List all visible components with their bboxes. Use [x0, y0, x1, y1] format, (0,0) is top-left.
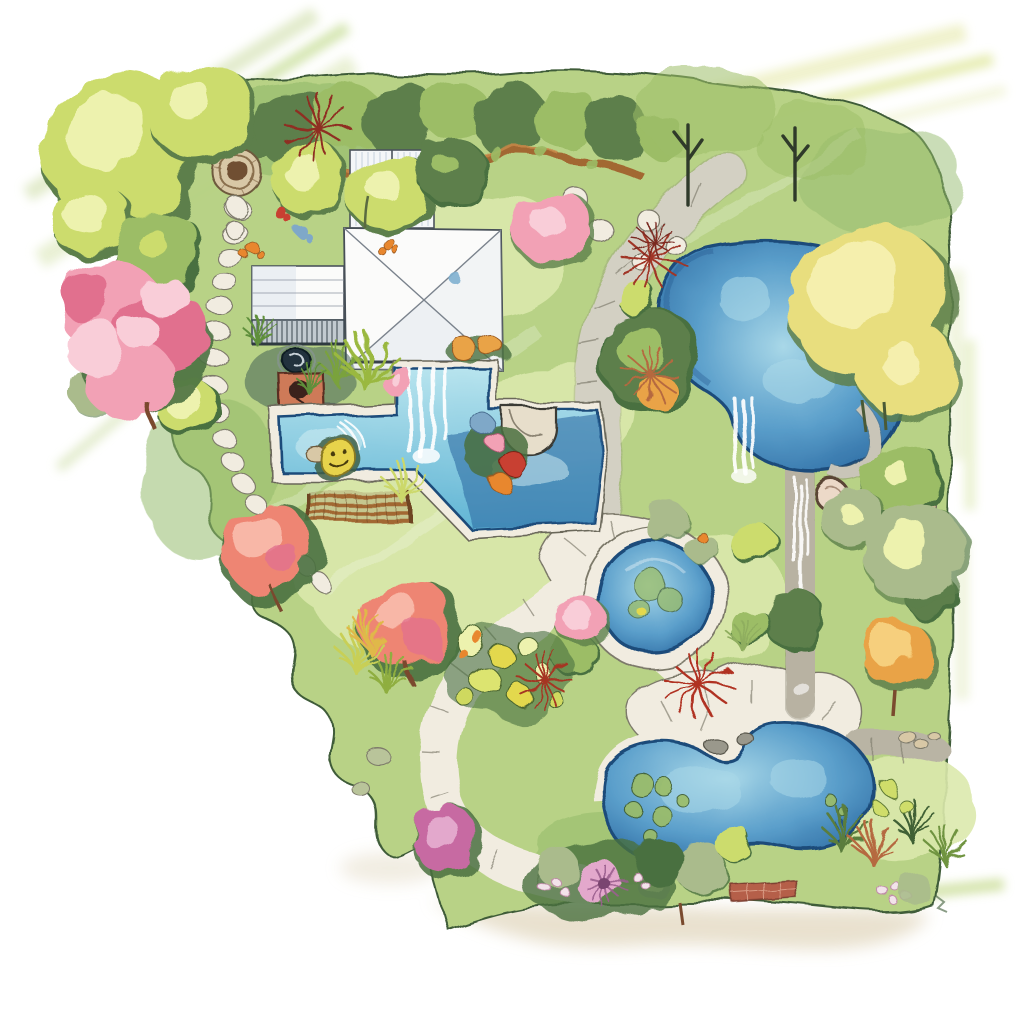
- stream: [790, 468, 810, 702]
- tree-green: [417, 138, 487, 205]
- garden-plan-illustration: [0, 0, 1024, 1024]
- bench-pergola: [306, 492, 412, 522]
- shrub-magenta: [410, 806, 484, 876]
- tree-pale-green: [864, 505, 970, 607]
- tree-lime: [149, 66, 256, 166]
- tree-green: [764, 590, 826, 650]
- tree-orange: [862, 622, 936, 691]
- shrub-lime: [619, 282, 658, 318]
- shrub-pink: [555, 596, 608, 645]
- fire-pit: [283, 347, 309, 373]
- shrub-sage: [684, 532, 716, 562]
- boardwalk: [252, 320, 344, 344]
- garden-plan-svg: [0, 0, 1024, 1024]
- brick-path: [733, 882, 798, 904]
